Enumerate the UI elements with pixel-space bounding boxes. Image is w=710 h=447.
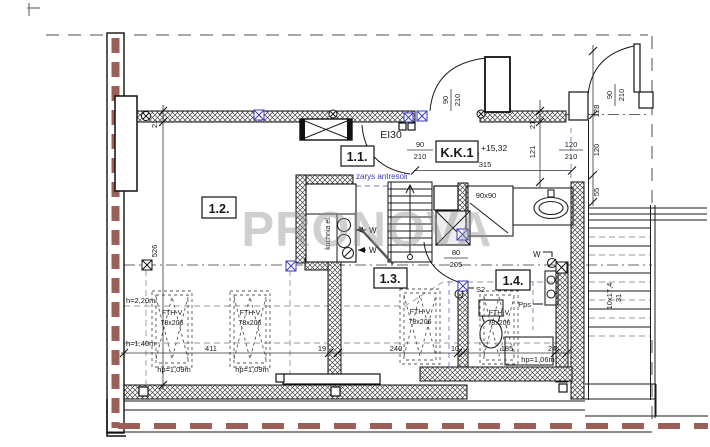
dim-55: 55 — [592, 188, 601, 196]
dim-121: 121 — [528, 146, 537, 159]
water-point-label: W — [533, 250, 541, 259]
left-fire-wall — [107, 33, 137, 436]
exterior-stair: 10x17,4 31 — [571, 120, 708, 418]
dim-21: 21 — [528, 121, 537, 129]
right-door-size: 90 210 — [605, 84, 626, 106]
svg-text:205: 205 — [450, 260, 463, 269]
stair-run-label: 10x17,4 — [605, 283, 614, 310]
mezzanine-outline-label: zarys antresoli — [356, 172, 408, 181]
roof-window-2: FTH-V 78x206 hp=1,09m — [230, 291, 270, 374]
window-model: FTH-V — [410, 309, 431, 316]
floor-plan-page: kuchnia el. W W 90x90 W Pps — [0, 0, 710, 447]
stair-width-label: 31 — [614, 294, 623, 302]
right-door-leaf — [634, 44, 640, 92]
window-size: 78x206 — [488, 320, 511, 327]
dim-24: 24 — [548, 344, 556, 353]
dim-315: 315 — [479, 160, 492, 169]
dimensions-right-vertical: 128 120 55 — [589, 45, 601, 206]
dim-10: 10 — [451, 344, 459, 353]
window-size: 78x206 — [239, 320, 262, 327]
room-label-1-2: 1.2. — [209, 202, 230, 216]
floor-plan-drawing: kuchnia el. W W 90x90 W Pps — [0, 0, 710, 447]
svg-text:210: 210 — [565, 152, 578, 161]
svg-text:90: 90 — [416, 140, 424, 149]
room-label-kk1: K.K.1 — [440, 145, 473, 160]
shower-size-label: 90x90 — [476, 191, 496, 200]
pps-label: Pps — [518, 300, 531, 309]
svg-text:90: 90 — [605, 91, 614, 99]
svg-text:210: 210 — [414, 152, 427, 161]
svg-text:210: 210 — [453, 94, 462, 107]
dim-240: 240 — [390, 344, 403, 353]
dim-19: 19 — [318, 344, 326, 353]
chimney-top — [300, 119, 352, 140]
window-sill-height: hp=1,09m — [235, 365, 269, 374]
dim-411: 411 — [205, 344, 217, 353]
ei30-door-size: 90 210 — [407, 140, 433, 161]
dim-185: 185 — [501, 344, 514, 353]
dim-21: 21 — [150, 120, 159, 128]
watermark: PRONOVA — [241, 203, 492, 257]
roof-window-1: FTH-V 78x206 hp=1,09m — [152, 291, 192, 374]
window-model: FTH-V — [240, 310, 261, 317]
fire-door-label: EI30 — [380, 129, 402, 141]
level-value: +15,32 — [481, 143, 508, 153]
left-chimney-breast — [115, 96, 137, 191]
right-door-arc — [588, 46, 634, 95]
svg-text:90: 90 — [441, 96, 450, 104]
svg-text:210: 210 — [617, 89, 626, 102]
room-label-1-3: 1.3. — [380, 272, 401, 286]
window-model: FTH-V — [162, 310, 183, 317]
basin-counter — [513, 188, 573, 225]
s2-label: S2 — [476, 285, 485, 294]
dim-526: 526 — [150, 245, 159, 258]
svg-text:120: 120 — [565, 140, 578, 149]
window-size: 78x206 — [161, 320, 184, 327]
window-size: 78x206 — [409, 319, 432, 326]
height-220-label: h=2,20m — [126, 296, 155, 305]
window-model: FTH-V — [489, 310, 510, 317]
window-sill-height: hp=1,06m — [521, 355, 555, 364]
window-sill-height: hp=1,09m — [157, 365, 191, 374]
entrance-door-recess — [485, 57, 510, 112]
dim-120: 120 — [592, 144, 601, 157]
entrance-door-size: 90 210 — [441, 89, 462, 111]
dim-128: 128 — [592, 105, 601, 118]
room-label-1-1: 1.1. — [347, 150, 368, 164]
height-140-label: h=1,40m — [126, 339, 155, 348]
room-label-1-4: 1.4. — [503, 274, 524, 288]
